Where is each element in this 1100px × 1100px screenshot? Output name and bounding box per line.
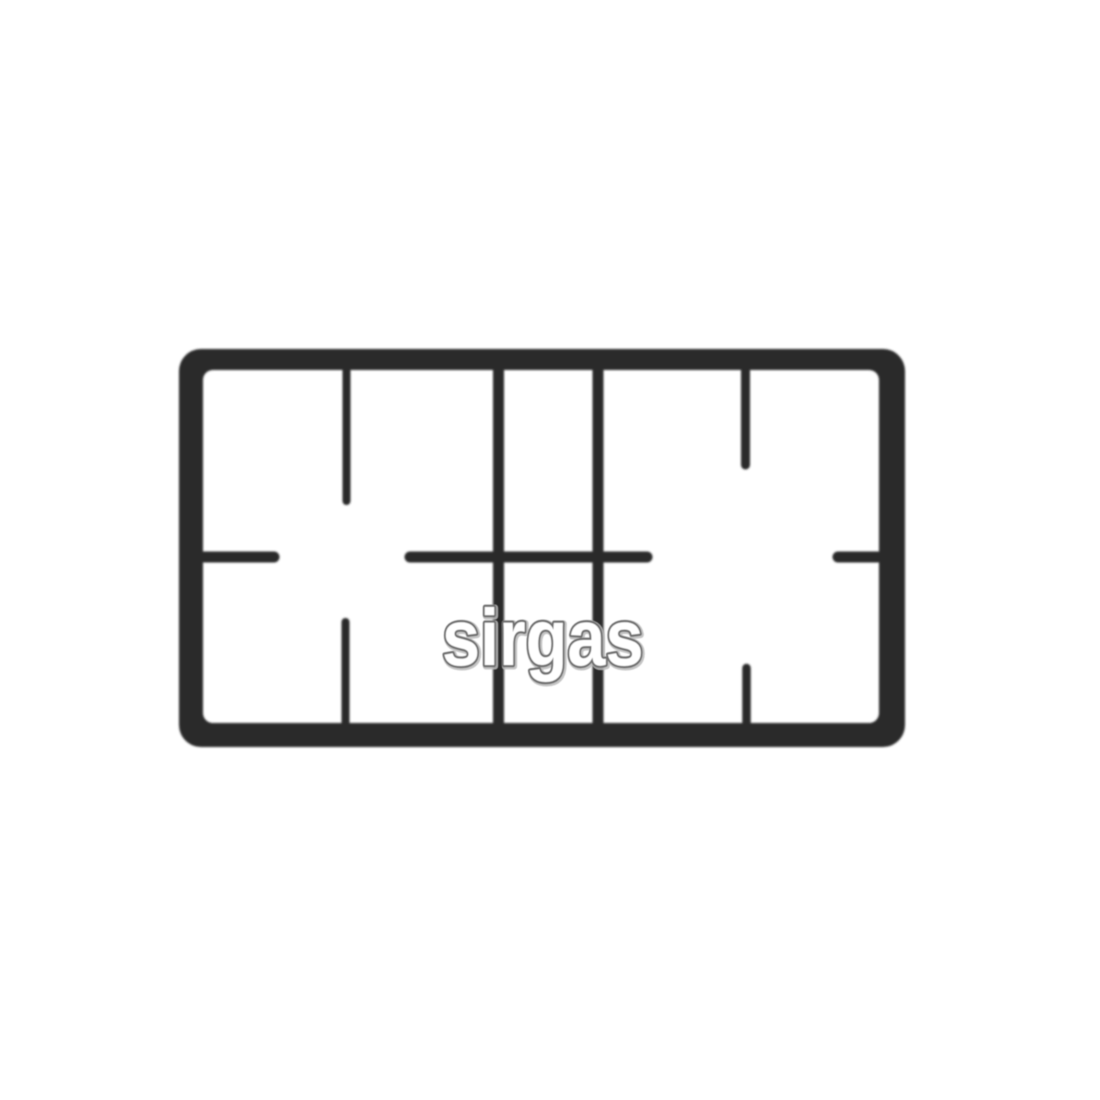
svg-text:sirgas: sirgas [442, 593, 643, 682]
